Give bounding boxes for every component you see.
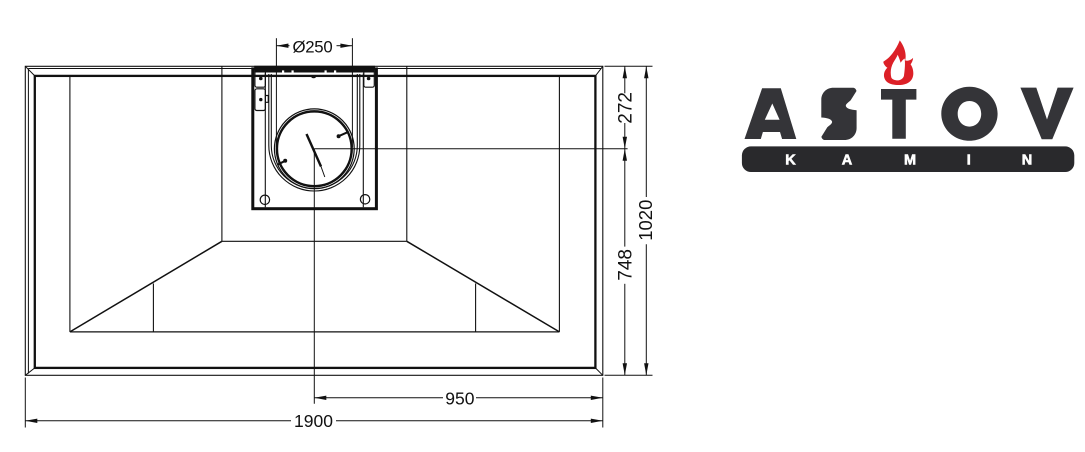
svg-text:M: M [904,153,916,169]
svg-text:K: K [785,153,796,169]
svg-text:Ø250: Ø250 [293,37,333,56]
svg-text:748: 748 [616,249,637,281]
svg-text:950: 950 [445,388,474,408]
svg-text:A: A [842,153,853,169]
svg-text:272: 272 [616,92,637,124]
svg-text:I: I [967,153,971,169]
svg-text:1900: 1900 [294,411,333,431]
svg-text:N: N [1022,153,1032,169]
svg-text:1020: 1020 [635,200,656,241]
